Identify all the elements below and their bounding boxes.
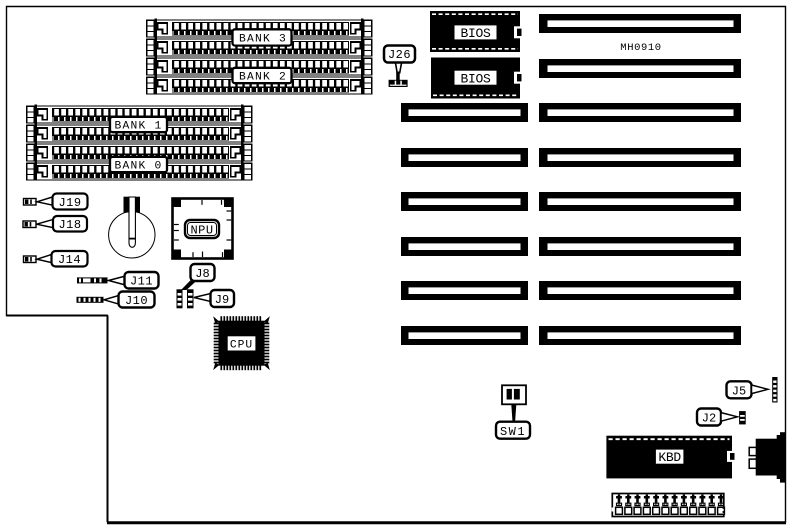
svg-text:J19: J19	[58, 196, 81, 210]
svg-text:J8: J8	[195, 267, 209, 281]
svg-text:MH0910: MH0910	[620, 42, 661, 54]
svg-text:J14: J14	[58, 253, 81, 267]
svg-text:J5: J5	[732, 384, 746, 398]
svg-text:J18: J18	[58, 218, 81, 232]
svg-text:J2: J2	[702, 412, 716, 426]
svg-text:BANK 0: BANK 0	[115, 161, 163, 173]
svg-text:CPU: CPU	[230, 340, 253, 352]
svg-text:J10: J10	[125, 294, 148, 308]
svg-text:BANK 2: BANK 2	[239, 72, 287, 84]
svg-text:SW1: SW1	[500, 425, 526, 439]
svg-text:BANK 3: BANK 3	[239, 34, 287, 46]
svg-text:NPU: NPU	[190, 224, 213, 238]
svg-text:J11: J11	[130, 275, 153, 289]
svg-text:BANK 1: BANK 1	[115, 121, 163, 133]
svg-text:J9: J9	[215, 293, 229, 307]
svg-text:BIOS: BIOS	[460, 71, 491, 86]
svg-text:BIOS: BIOS	[460, 26, 491, 41]
svg-text:KBD: KBD	[658, 450, 681, 465]
svg-text:J26: J26	[388, 48, 411, 62]
